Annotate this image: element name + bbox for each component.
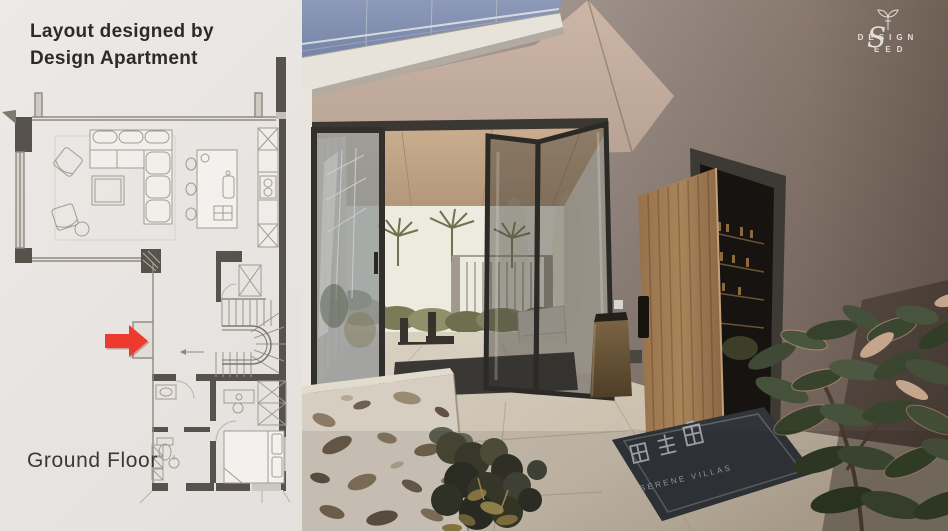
watermark-line2: EED <box>874 45 908 54</box>
plan-living-furniture <box>51 130 175 240</box>
door-lock <box>638 296 649 338</box>
bar-plant <box>722 336 758 360</box>
slide: Layout designed by Design Apartment Grou… <box>0 0 948 531</box>
entrance-photo: SERENE VILLAS <box>302 0 948 531</box>
designer-credit: Layout designed by Design Apartment <box>30 19 255 73</box>
plan-walls <box>2 57 286 491</box>
wooden-door <box>638 168 728 458</box>
floor-plan-panel: Layout designed by Design Apartment Grou… <box>0 0 302 531</box>
vignette <box>302 431 948 531</box>
watermark-line1: DESIGN <box>840 33 936 42</box>
door-handle <box>374 252 378 274</box>
outer-wall-edge <box>302 88 312 404</box>
brand-watermark: DESIGN S EED <box>840 8 936 66</box>
photo-illustration: SERENE VILLAS <box>302 0 948 531</box>
glass-panel-left <box>314 130 382 392</box>
pedestal-bin <box>590 312 632 398</box>
plan-stairs <box>180 300 286 377</box>
plan-kitchen <box>186 128 278 247</box>
floor-label: Ground Floor <box>27 449 158 473</box>
wall-plate <box>614 300 623 309</box>
